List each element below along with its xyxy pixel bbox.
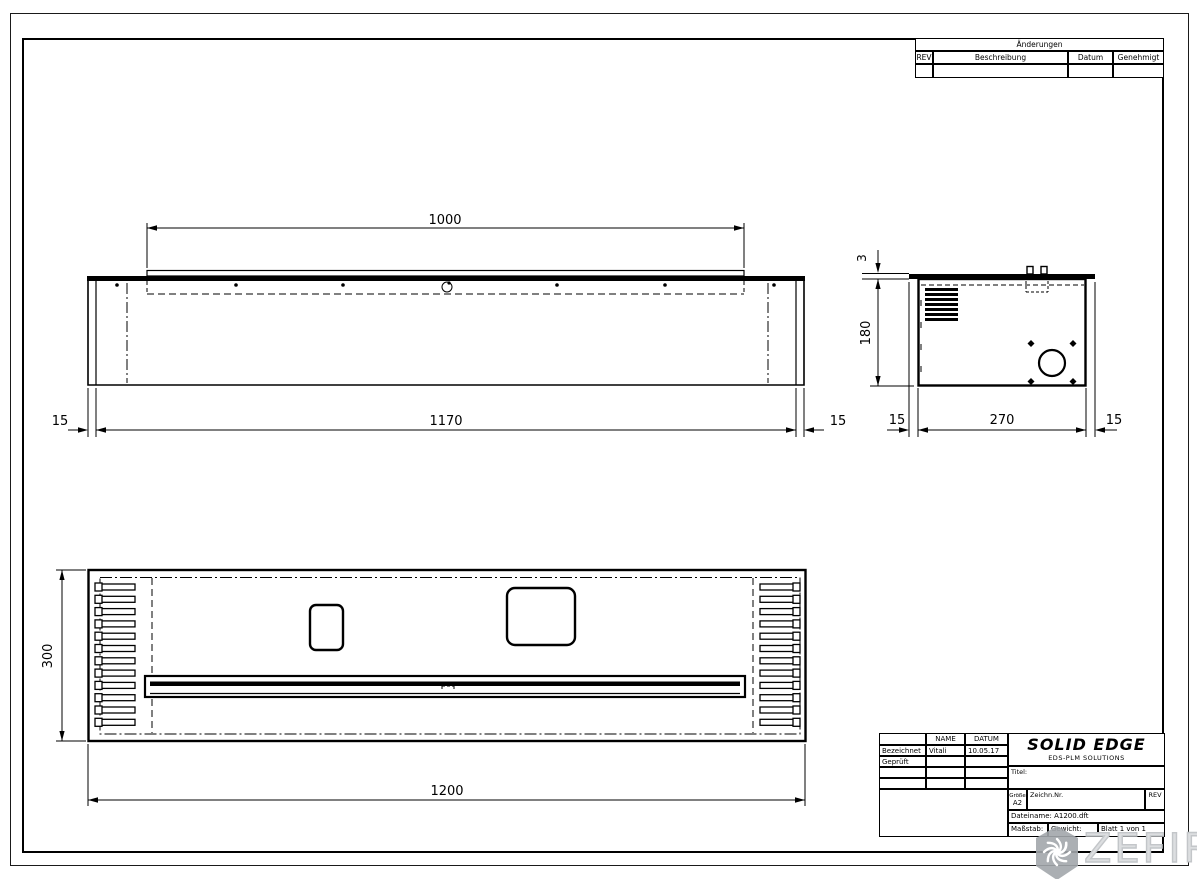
plan-dim-300-text: 300 [41, 644, 56, 669]
side-bolt-marks [1028, 340, 1077, 385]
tb-geprueft-name [926, 756, 965, 767]
side-dim-180 [870, 279, 914, 386]
front-view: 1000 1170 15 15 [52, 213, 847, 437]
side-dim-270-text: 270 [990, 413, 1015, 428]
side-dim-180-text: 180 [859, 321, 874, 346]
revisions-col-datum: Datum [1068, 51, 1113, 64]
plan-dim-1200-text: 1200 [430, 784, 463, 799]
front-dim-1000-text: 1000 [428, 213, 461, 228]
plan-view: 300 1200 [41, 570, 806, 806]
revisions-col-genehmigt: Genehmigt [1113, 51, 1164, 64]
tb-empty-row [965, 767, 1008, 778]
solid-edge-logo: SOLID EDGE [1027, 737, 1145, 753]
revisions-empty-cell [1113, 64, 1164, 78]
tb-bezeichnet-date: 10.05.17 [965, 745, 1008, 756]
plan-slot-bank-right [760, 583, 800, 726]
front-dim-1000 [147, 223, 744, 268]
tb-rev-label: REV [1148, 791, 1161, 799]
tb-sheet-cell: Blatt 1 von 1 [1098, 823, 1165, 837]
revisions-col-beschreibung: Beschreibung [933, 51, 1068, 64]
tb-datum-header: DATUM [965, 733, 1008, 745]
tb-bezeichnet-name: Vitali [926, 745, 965, 756]
tb-titel-label: Titel: [1011, 768, 1027, 776]
side-dim-15-left-text: 15 [889, 413, 906, 428]
front-fastener-dots [115, 283, 776, 287]
front-dim-15-left-text: 15 [52, 414, 69, 429]
tb-empty-row [965, 778, 1008, 789]
tb-empty-row [879, 767, 926, 778]
revisions-title: Änderungen [915, 38, 1164, 51]
tb-drawing-no-label: Zeichn.Nr. [1030, 791, 1063, 799]
tb-empty-row [926, 778, 965, 789]
tb-scale-cell: Maßstab: [1008, 823, 1048, 837]
tb-titel-cell: Titel: [1008, 766, 1165, 789]
tb-notes-cell [879, 789, 1008, 837]
front-lip [147, 271, 744, 277]
plan-cutout-large [507, 588, 575, 645]
tb-geprueft-label: Geprüft [879, 756, 926, 767]
revisions-empty-cell [933, 64, 1068, 78]
tb-size-value: A2 [1013, 799, 1022, 807]
tb-rev-cell: REV [1145, 789, 1165, 810]
revisions-empty-cell [915, 64, 933, 78]
plan-outline [89, 570, 806, 741]
tb-drawing-no-cell: Zeichn.Nr. [1027, 789, 1145, 810]
front-dim-bottom [68, 388, 824, 437]
side-pipe-hole [1039, 350, 1065, 376]
revisions-empty-cell [1068, 64, 1113, 78]
tb-name-header: NAME [926, 733, 965, 745]
tb-weight-cell: Gewicht: [1048, 823, 1098, 837]
tb-size-cell: Größe A2 [1008, 789, 1027, 810]
tb-geprueft-date [965, 756, 1008, 767]
plan-dim-300 [56, 570, 86, 741]
tb-filename-cell: Dateiname: A1200.dft [1008, 810, 1165, 823]
side-vent-slots [925, 288, 958, 321]
side-dim-3 [862, 250, 909, 279]
drawing-sheet: 1000 1170 15 15 [0, 0, 1197, 879]
tb-logo-cell: SOLID EDGE EDS-PLM SOLUTIONS [1008, 733, 1165, 766]
revisions-table: Änderungen REV Beschreibung Datum Genehm… [915, 38, 1164, 78]
side-dim-15-right-text: 15 [1106, 413, 1123, 428]
revisions-col-rev: REV [915, 51, 933, 64]
plan-burner-slot [145, 676, 745, 697]
front-body-outline [88, 281, 804, 385]
tb-empty-row [879, 778, 926, 789]
solid-edge-logo-subtitle: EDS-PLM SOLUTIONS [1048, 754, 1125, 762]
plan-slot-bank-left [95, 583, 135, 726]
plan-cutout-small [310, 605, 343, 650]
side-view: 3 180 15 270 15 [855, 250, 1122, 437]
side-dim-3-text: 3 [855, 254, 869, 262]
plan-centerline-box [100, 578, 800, 735]
front-dim-1170-text: 1170 [429, 414, 462, 429]
tb-empty-row [926, 767, 965, 778]
title-block: NAME DATUM Bezeichnet Vitali 10.05.17 Ge… [879, 733, 1165, 837]
front-top-plate [87, 276, 805, 281]
front-dim-15-right-text: 15 [830, 414, 847, 429]
tb-empty-header [879, 733, 926, 745]
tb-bezeichnet-label: Bezeichnet [879, 745, 926, 756]
